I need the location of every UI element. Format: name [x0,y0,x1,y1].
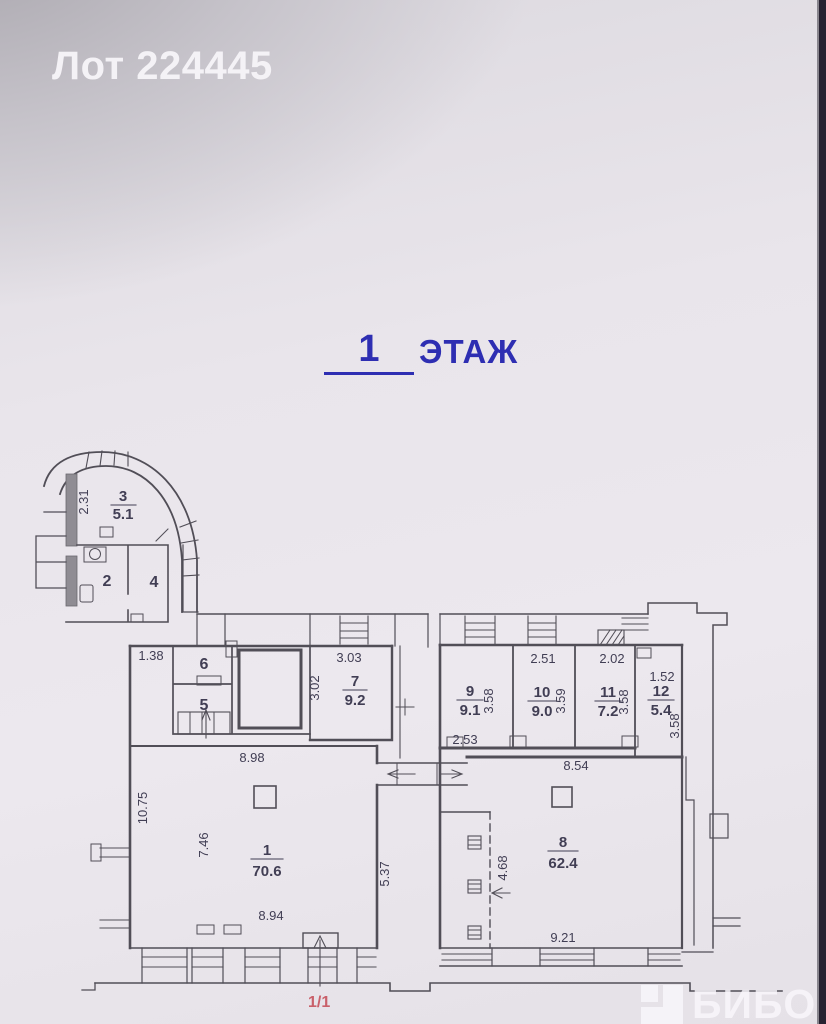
dim-room1-top: 8.98 [239,750,264,765]
room-3-area: 5.1 [113,506,134,523]
facade-strip [197,614,648,647]
dim-room1-inner: 7.46 [196,832,211,857]
room-12-number: 12 [653,683,670,700]
room-8-number: 8 [559,834,567,851]
photo-edge [817,0,826,1024]
dim-room1-left: 10.75 [135,792,150,825]
room-3-number: 3 [119,488,127,505]
room-4-number: 4 [150,574,159,591]
biboss-logo-icon [641,985,683,1024]
dim-niche-width: 1.38 [138,648,163,663]
dimension-labels: 2.31 1.38 3.03 3.02 8.98 10.75 7.46 8.94… [76,489,682,945]
watermark-text: БИБОСС [692,985,826,1024]
room-2-number: 2 [103,573,112,590]
dim-room7-depth: 3.02 [307,675,322,700]
listing-photo: Лот 224445 1 ЭТАЖ [0,0,826,1024]
dim-room8-inner: 4.68 [495,855,510,880]
dim-room9-depth: 3.58 [481,688,496,713]
passage [377,763,467,785]
room-6-number: 6 [200,656,209,673]
dim-room12-width: 1.52 [649,669,674,684]
dim-room11-width: 2.02 [599,651,624,666]
floor-plan-drawing: 2.31 1.38 3.03 3.02 8.98 10.75 7.46 8.94… [0,0,826,1024]
curved-entrance-walls [36,451,199,622]
dim-room8-top: 8.54 [563,758,588,773]
room-8-area: 62.4 [548,855,578,872]
dim-room10-width: 2.51 [530,651,555,666]
room-9-number: 9 [466,683,474,700]
dim-room8-bottom: 9.21 [550,930,575,945]
page-number-label: 1/1 [308,994,330,1012]
room-10-number: 10 [534,684,551,701]
room-7-number: 7 [351,673,359,690]
room-7-area: 9.2 [345,692,366,709]
dim-room1-bottom: 8.94 [258,908,283,923]
room-11-number: 11 [600,684,616,701]
room-1-number: 1 [263,842,271,859]
dim-room1-right: 5.37 [377,861,392,886]
dim-room9-bottom: 2.53 [452,732,477,747]
adjacent-structure [648,603,740,952]
room-10-area: 9.0 [532,703,553,720]
room-1-area: 70.6 [252,863,281,880]
dim-room3-width: 2.31 [76,489,91,514]
dim-room7-width: 3.03 [336,650,361,665]
watermark: БИБОСС [641,985,826,1024]
left-bottom-wall [82,933,782,991]
room-9-area: 9.1 [460,702,481,719]
room-5-number: 5 [200,697,209,714]
room-11-area: 7.2 [598,703,619,720]
room-12-area: 5.4 [651,702,673,719]
